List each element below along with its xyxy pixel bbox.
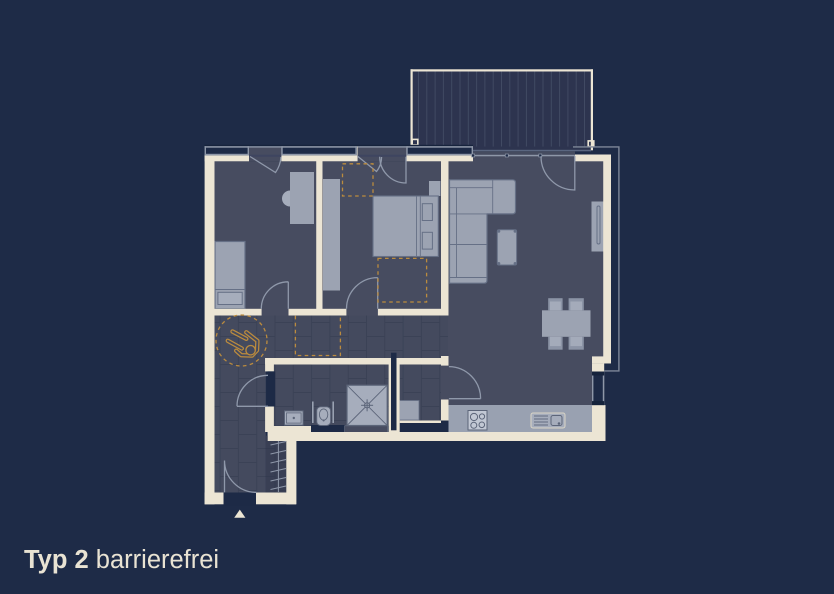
svg-text:Typ 2 barrierefrei: Typ 2 barrierefrei xyxy=(24,546,219,574)
